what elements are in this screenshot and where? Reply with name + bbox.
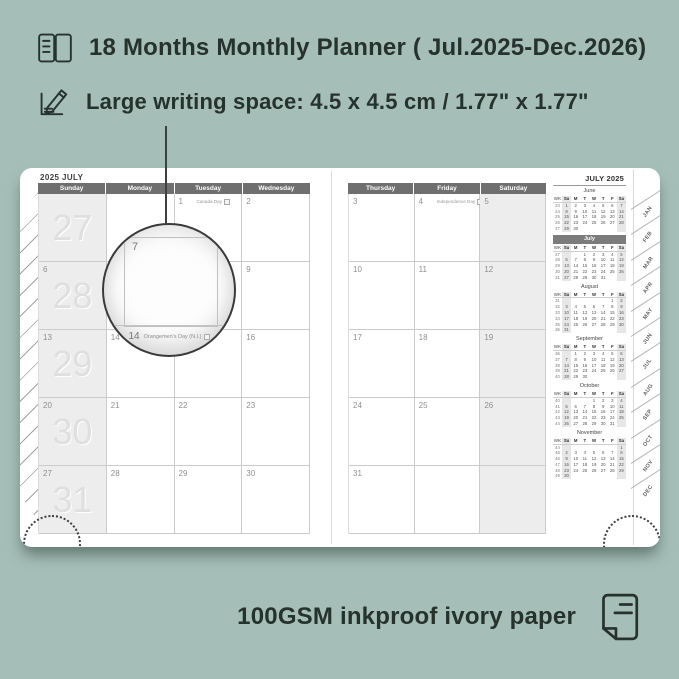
mini-header-cell: T — [580, 344, 589, 351]
mini-month-name: November — [553, 430, 626, 437]
mini-day-cell: 30 — [580, 374, 589, 380]
mini-day-cell: 31 — [562, 327, 571, 333]
center-fold-line — [331, 171, 332, 544]
weekday-header-row: ThursdayFridaySaturday — [348, 183, 546, 194]
mini-day-cell: 31 — [553, 275, 562, 281]
mini-header-cell: Sa — [617, 292, 626, 299]
mini-calendar-sidebar: JULY 2025 JuneWKSuMTWTFSa231234567248910… — [553, 173, 626, 482]
mini-month-grid: WKSuMTWTFSa44145234567846910111213141547… — [553, 438, 626, 480]
date-number: 3 — [353, 197, 357, 206]
date-number: 21 — [111, 401, 120, 410]
mini-day-cell — [589, 327, 598, 333]
calendar-cell: 29 — [175, 466, 243, 534]
page-edge-hatching — [20, 190, 40, 524]
calendar-cell: 17 — [349, 330, 415, 398]
date-number: 18 — [419, 333, 428, 342]
feature-paper: 100GSM inkproof ivory paper — [0, 591, 641, 643]
mini-header-cell: Sa — [617, 391, 626, 398]
mini-header-cell: WK — [553, 391, 562, 398]
mini-day-cell — [617, 226, 626, 232]
planner-spread: 2025 JULY SundayMondayTuesdayWednesday27… — [20, 168, 660, 547]
feature-writing-space-label: Large writing space: 4.5 x 4.5 cm / 1.77… — [86, 89, 589, 115]
mini-day-cell: 27 — [562, 275, 571, 281]
mini-day-cell: 49 — [553, 473, 562, 479]
weekday-header-row: SundayMondayTuesdayWednesday — [38, 183, 310, 194]
date-number: 13 — [43, 333, 52, 342]
date-number: 2 — [246, 197, 250, 206]
mini-day-cell — [599, 327, 608, 333]
week-number-watermark: 30 — [52, 411, 92, 453]
mini-header-cell: T — [580, 196, 589, 203]
mini-day-cell: 27 — [553, 226, 562, 232]
month-tab: AUG — [634, 378, 660, 403]
mini-month-grid: WKSuMTWTFSa40123441567891011421213141516… — [553, 391, 626, 427]
mini-header-cell: F — [608, 245, 617, 252]
date-number: 28 — [111, 469, 120, 478]
month-tab: SEP — [634, 403, 660, 428]
date-number: 29 — [179, 469, 188, 478]
mini-day-cell: 40 — [553, 374, 562, 380]
date-number: 16 — [246, 333, 255, 342]
weekday-header: Monday — [106, 183, 173, 194]
mini-header-cell: Su — [562, 196, 571, 203]
calendar-cell: 19 — [480, 330, 546, 398]
mini-header-cell: Su — [562, 391, 571, 398]
mini-day-cell — [608, 226, 617, 232]
mini-header-cell: Sa — [617, 344, 626, 351]
weekday-header: Saturday — [481, 183, 546, 194]
mini-header-cell: F — [608, 196, 617, 203]
calendar-cell: 22 — [175, 398, 243, 466]
mini-header-cell: M — [571, 292, 580, 299]
mini-header-cell: T — [580, 438, 589, 445]
mini-header-cell: W — [589, 245, 598, 252]
mini-day-cell — [617, 327, 626, 333]
holiday-flag-icon — [204, 334, 210, 340]
date-number: 5 — [484, 197, 488, 206]
mini-header-cell: WK — [553, 245, 562, 252]
month-tab-label: JUN — [642, 332, 654, 345]
mini-header-cell: T — [580, 245, 589, 252]
date-number: 6 — [43, 265, 47, 274]
mini-day-cell — [608, 327, 617, 333]
calendar-cell: 31 — [349, 466, 415, 534]
calendar-cell: 9 — [242, 262, 310, 330]
calendar-cell: 12 — [480, 262, 546, 330]
mini-day-cell: 36 — [553, 327, 562, 333]
calendar-cell: 27 — [39, 194, 107, 262]
date-number: 11 — [419, 265, 427, 274]
mini-day-cell — [599, 473, 608, 479]
mini-day-cell — [617, 421, 626, 427]
mini-day-cell: 31 — [599, 275, 608, 281]
week-number-watermark: 31 — [52, 479, 92, 521]
month-grid-body: 34Independence Day510111217181924252631 — [348, 194, 546, 534]
mini-day-cell — [589, 473, 598, 479]
mini-month-name: September — [553, 336, 626, 343]
mini-day-cell: 27 — [571, 421, 580, 427]
mini-day-cell — [608, 473, 617, 479]
mini-month-grid: WKSuMTWTFSa27123452867891011122913141516… — [553, 245, 626, 281]
calendar-cell: 4Independence Day — [415, 194, 481, 262]
mini-day-cell — [599, 226, 608, 232]
mini-header-cell: T — [599, 245, 608, 252]
date-number: 20 — [43, 401, 52, 410]
date-number: 1 — [179, 197, 183, 206]
calendar-cell: 16 — [242, 330, 310, 398]
mini-day-cell: 28 — [580, 421, 589, 427]
mini-header-cell: WK — [553, 438, 562, 445]
mini-header-cell: F — [608, 292, 617, 299]
mini-header-cell: M — [571, 344, 580, 351]
month-tab-label: FEB — [642, 231, 654, 244]
mini-day-cell: 29 — [580, 275, 589, 281]
mini-month: SeptemberWKSuMTWTFSa36123456377891011121… — [553, 336, 626, 380]
calendar-cell — [480, 466, 546, 534]
mini-day-cell — [571, 473, 580, 479]
month-tab: JAN — [634, 200, 660, 225]
date-number: 31 — [353, 469, 362, 478]
month-tab-label: SEP — [642, 409, 654, 422]
month-tab: JUL — [634, 352, 660, 377]
calendar-cell: 2 — [242, 194, 310, 262]
feature-writing-space: Large writing space: 4.5 x 4.5 cm / 1.77… — [36, 84, 589, 119]
mini-header-cell: Sa — [617, 245, 626, 252]
mini-day-cell: 30 — [599, 421, 608, 427]
calendar-cell: 28 — [107, 466, 175, 534]
month-tab-label: JAN — [642, 205, 654, 218]
weekday-header: Wednesday — [243, 183, 310, 194]
mini-header-cell: F — [608, 438, 617, 445]
mini-day-cell — [589, 226, 598, 232]
mini-header-cell: W — [589, 438, 598, 445]
calendar-cell: 24 — [349, 398, 415, 466]
mini-day-cell — [617, 275, 626, 281]
date-number: 22 — [179, 401, 188, 410]
mini-day-cell: 29 — [571, 374, 580, 380]
month-tab-label: DEC — [642, 484, 654, 498]
month-tab-label: MAR — [642, 256, 655, 270]
mini-month: JuneWKSuMTWTFSa2312345672489101112131425… — [553, 188, 626, 232]
calendar-cell: 21 — [107, 398, 175, 466]
calendar-cell: 5 — [480, 194, 546, 262]
month-tab-label: OCT — [642, 434, 654, 448]
month-tab-label: NOV — [642, 459, 654, 473]
feature-months: 18 Months Monthly Planner ( Jul.2025-Dec… — [36, 30, 646, 66]
mini-day-cell: 30 — [589, 275, 598, 281]
mini-month-grid: WKSuMTWTFSa36123456377891011121338141516… — [553, 344, 626, 380]
mini-header-cell: Sa — [617, 438, 626, 445]
mini-header-cell: WK — [553, 292, 562, 299]
mini-month-name: October — [553, 383, 626, 390]
week-number-watermark: 29 — [52, 343, 92, 385]
date-number: 17 — [353, 333, 362, 342]
magnified-row-line — [108, 325, 230, 326]
date-number: 9 — [246, 265, 250, 274]
mini-header-cell: M — [571, 391, 580, 398]
date-number: 4 — [419, 197, 423, 206]
mini-day-cell — [580, 473, 589, 479]
month-tab: APR — [634, 276, 660, 301]
date-number: 24 — [353, 401, 362, 410]
sidebar-title: JULY 2025 — [553, 173, 626, 186]
calendar-cell: 30 — [242, 466, 310, 534]
month-tab-label: AUG — [642, 383, 654, 397]
calendar-cell: 286 — [39, 262, 107, 330]
mini-month-grid: WKSuMTWTFSa23123456724891011121314251516… — [553, 196, 626, 232]
magnified-footer-holiday: Orangemen's Day (N.I.) — [144, 334, 202, 340]
date-number: 25 — [419, 401, 428, 410]
weekday-header: Friday — [414, 183, 479, 194]
holiday-flag-icon — [224, 199, 230, 205]
mini-day-cell — [608, 275, 617, 281]
magnified-next-row: 14Orangemen's Day (N.I.) — [104, 328, 234, 346]
mini-month-name: August — [553, 284, 626, 291]
mini-day-cell: 30 — [571, 226, 580, 232]
planner-book-icon — [36, 30, 74, 66]
month-tab: JUN — [634, 327, 660, 352]
month-tab: FEB — [634, 225, 660, 250]
mini-header-cell: M — [571, 196, 580, 203]
mini-header-cell: W — [589, 196, 598, 203]
calendar-cell: 25 — [415, 398, 481, 466]
mini-header-cell: Sa — [617, 196, 626, 203]
date-number: 30 — [246, 469, 255, 478]
month-tab-label: APR — [642, 281, 654, 295]
mini-calendars: JuneWKSuMTWTFSa2312345672489101112131425… — [553, 188, 626, 479]
calendar-cell: 23 — [242, 398, 310, 466]
week-number-watermark: 28 — [52, 275, 92, 317]
calendar-cell: 3020 — [39, 398, 107, 466]
date-number: 26 — [484, 401, 493, 410]
mini-header-cell: T — [599, 196, 608, 203]
mini-header-cell: T — [580, 391, 589, 398]
mini-header-cell: Su — [562, 344, 571, 351]
mini-day-cell — [571, 327, 580, 333]
calendar-cell — [415, 466, 481, 534]
magnified-date: 7 — [132, 241, 138, 253]
mini-header-cell: W — [589, 391, 598, 398]
calendar-cell: 3 — [349, 194, 415, 262]
mini-header-cell: T — [599, 438, 608, 445]
feature-months-label: 18 Months Monthly Planner ( Jul.2025-Dec… — [89, 34, 646, 62]
mini-header-cell: WK — [553, 196, 562, 203]
mini-day-cell: 44 — [553, 421, 562, 427]
mini-day-cell: 28 — [562, 374, 571, 380]
mini-month-name: June — [553, 188, 626, 195]
month-tabs: JANFEBMARAPRMAYJUNJULAUGSEPOCTNOVDEC — [634, 200, 660, 505]
mini-header-cell: Su — [562, 292, 571, 299]
paper-sheet-icon — [593, 591, 641, 643]
month-tab-label: MAY — [642, 307, 654, 321]
mini-header-cell: Su — [562, 245, 571, 252]
weekday-header: Thursday — [348, 183, 413, 194]
mini-month: AugustWKSuMTWTFSa31123234567893310111213… — [553, 284, 626, 334]
mini-month: NovemberWKSuMTWTFSa441452345678469101112… — [553, 430, 626, 480]
holiday-label: Canada Day — [197, 199, 231, 205]
month-tab: DEC — [634, 479, 660, 504]
month-tab: NOV — [634, 454, 660, 479]
month-tab: OCT — [634, 429, 660, 454]
date-number: 27 — [43, 469, 52, 478]
mini-day-cell — [589, 374, 598, 380]
weekday-header: Tuesday — [175, 183, 242, 194]
mini-header-cell: T — [599, 344, 608, 351]
mini-month: OctoberWKSuMTWTFSa4012344156789101142121… — [553, 383, 626, 427]
mini-day-cell — [617, 374, 626, 380]
calendar-cell: 18 — [415, 330, 481, 398]
mini-header-cell: T — [599, 391, 608, 398]
mini-day-cell — [608, 374, 617, 380]
date-number: 12 — [484, 265, 493, 274]
mini-header-cell: W — [589, 344, 598, 351]
mini-day-cell: 29 — [562, 226, 571, 232]
mini-day-cell — [599, 374, 608, 380]
holiday-label: Independence Day — [437, 199, 484, 205]
calendar-cell: 10 — [349, 262, 415, 330]
mini-header-cell: F — [608, 391, 617, 398]
month-tab-label: JUL — [642, 358, 653, 371]
mini-header-cell: Su — [562, 438, 571, 445]
right-month-grid: ThursdayFridaySaturday34Independence Day… — [348, 183, 546, 534]
mini-header-cell: T — [599, 292, 608, 299]
mini-month: JulyWKSuMTWTFSa2712345286789101112291314… — [553, 235, 626, 281]
month-tab: MAY — [634, 302, 660, 327]
mini-day-cell — [580, 226, 589, 232]
magnifier-leader-line — [165, 126, 167, 225]
mini-header-cell: M — [571, 245, 580, 252]
calendar-cell: 26 — [480, 398, 546, 466]
feature-paper-label: 100GSM inkproof ivory paper — [237, 603, 576, 631]
mini-header-cell: F — [608, 344, 617, 351]
magnified-footer-date: 14 — [128, 331, 139, 342]
mini-day-cell: 28 — [571, 275, 580, 281]
date-number: 23 — [246, 401, 255, 410]
mini-month-grid: WKSuMTWTFSa31123234567893310111213141516… — [553, 292, 626, 334]
dotted-corner-arc-right — [603, 515, 660, 547]
mini-day-cell — [617, 473, 626, 479]
mini-header-cell: M — [571, 438, 580, 445]
mini-day-cell — [580, 327, 589, 333]
week-number-watermark: 27 — [52, 207, 92, 249]
mini-day-cell: 26 — [562, 421, 571, 427]
writing-pencil-icon — [36, 84, 71, 119]
date-number: 10 — [353, 265, 362, 274]
left-page-title: 2025 JULY — [40, 173, 83, 182]
mini-day-cell: 31 — [608, 421, 617, 427]
weekday-header: Sunday — [38, 183, 105, 194]
month-tab: MAR — [634, 251, 660, 276]
calendar-cell: 11 — [415, 262, 481, 330]
mini-header-cell: W — [589, 292, 598, 299]
calendar-cell: 2913 — [39, 330, 107, 398]
mini-month-name: July — [553, 235, 626, 244]
mini-header-cell: WK — [553, 344, 562, 351]
mini-header-cell: T — [580, 292, 589, 299]
magnifier-circle: 7 14Orangemen's Day (N.I.) — [102, 223, 236, 357]
mini-day-cell: 30 — [562, 473, 571, 479]
date-number: 19 — [484, 333, 493, 342]
mini-day-cell: 29 — [589, 421, 598, 427]
